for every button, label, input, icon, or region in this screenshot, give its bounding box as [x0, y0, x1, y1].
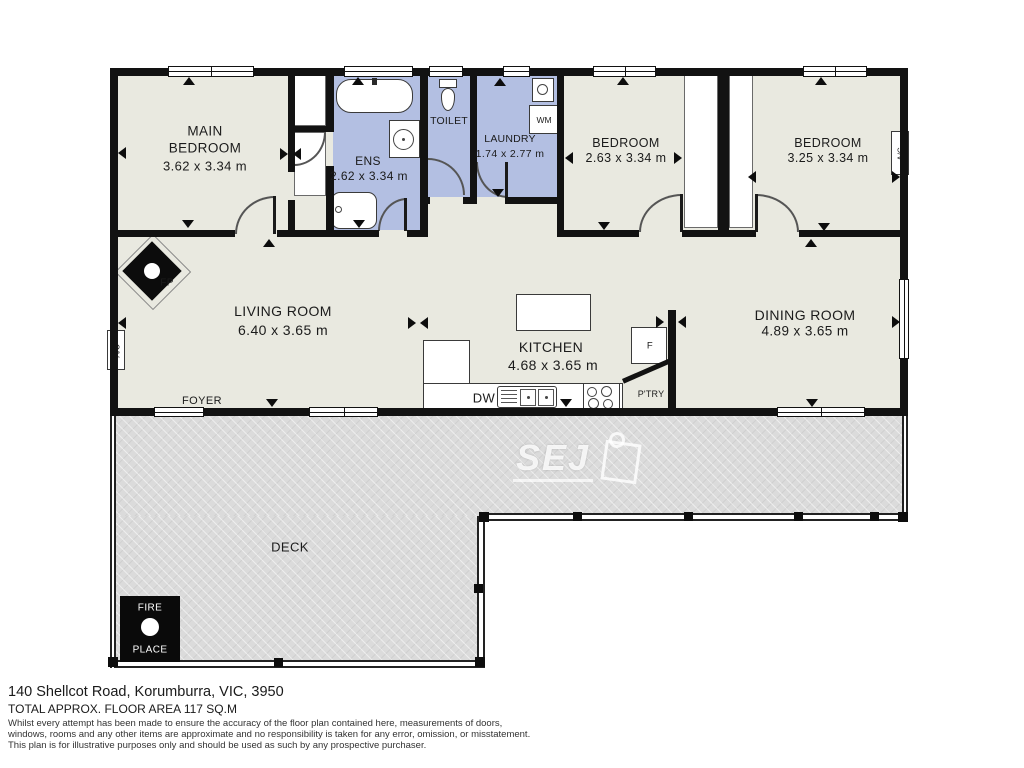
dimension-arrow: [806, 399, 818, 407]
dimension-arrow: [118, 317, 126, 329]
door-leaf: [273, 196, 276, 234]
window: [429, 66, 463, 77]
fridge: F: [631, 327, 667, 364]
wall: [463, 197, 477, 204]
window: [309, 407, 378, 417]
disclaimer-line: This plan is for illustrative purposes o…: [8, 740, 426, 751]
deck-railing: [483, 513, 908, 521]
wall: [407, 230, 428, 237]
dimension-arrow: [420, 317, 428, 329]
deck-railing: [110, 416, 116, 668]
room-label-deck: DECK: [271, 540, 309, 555]
room-label-living: LIVING ROOM: [234, 303, 332, 319]
room-label-kitchen: KITCHEN: [519, 339, 583, 355]
sink-drainer: [501, 390, 517, 404]
dimension-arrow: [656, 316, 664, 328]
wall: [110, 68, 118, 416]
dimension-arrow: [892, 171, 900, 183]
laundry-trough-bowl: [537, 84, 548, 95]
deck-post: [870, 512, 879, 521]
window-mullion: [211, 67, 212, 76]
disclaimer-line: Whilst every attempt has been made to en…: [8, 718, 502, 729]
washing-machine: WM: [529, 105, 558, 134]
dimension-arrow: [815, 77, 827, 85]
wall: [326, 230, 379, 237]
deck-fireplace-flue: [141, 618, 159, 636]
window: [168, 66, 254, 77]
dimension-arrow: [892, 316, 900, 328]
disclaimer-line: windows, rooms and any other items are a…: [8, 729, 530, 740]
dimension-arrow: [805, 239, 817, 247]
room-dims-dining: 4.89 x 3.65 m: [762, 324, 849, 339]
room-dims-laundry: 1.74 x 2.77 m: [476, 148, 545, 160]
dimension-arrow: [674, 152, 682, 164]
sej-watermark-text: SEJ: [516, 437, 590, 479]
deck-post: [274, 658, 283, 667]
window: [803, 66, 867, 77]
dimension-arrow: [598, 222, 610, 230]
shower-tap: [335, 206, 342, 213]
room-label-toilet: TOILET: [430, 115, 468, 127]
wall: [900, 68, 908, 416]
vanity-basin-drain: [402, 138, 405, 141]
window: [154, 407, 204, 417]
dimension-arrow: [293, 148, 301, 160]
room-dims-bedroom2: 2.63 x 3.34 m: [586, 151, 667, 165]
wall: [290, 126, 328, 132]
main-bedroom-robe-upper: [294, 75, 326, 126]
door-leaf: [505, 162, 508, 198]
deck-railing: [902, 416, 908, 516]
window-mullion: [835, 67, 836, 76]
dimension-arrow: [353, 220, 365, 228]
room-label-bedroom2: BEDROOM: [592, 136, 659, 150]
deck-post: [898, 512, 908, 522]
window: [899, 279, 909, 359]
floor-area-text: TOTAL APPROX. FLOOR AREA 117 SQ.M: [8, 702, 237, 716]
room-label-main-bedroom: BEDROOM: [169, 141, 242, 156]
dimension-arrow: [183, 77, 195, 85]
wall: [718, 68, 729, 237]
dimension-arrow: [408, 317, 416, 329]
stove-burner: [601, 386, 612, 397]
room-dims-main-bedroom: 3.62 x 3.34 m: [163, 159, 247, 174]
room-dims-living: 6.40 x 3.65 m: [238, 322, 328, 338]
window: [344, 66, 413, 77]
wall: [420, 68, 428, 237]
bedroom2-robe: [684, 75, 718, 228]
dimension-arrow: [565, 152, 573, 164]
bedroom3-robe: [729, 75, 753, 228]
door-leaf: [755, 194, 758, 232]
sink-bowl-drain: [545, 396, 548, 399]
wall: [505, 197, 564, 204]
room-dims-kitchen: 4.68 x 3.65 m: [508, 357, 598, 373]
wall: [420, 197, 430, 204]
toilet-cistern: [439, 79, 457, 88]
wall: [110, 230, 235, 237]
dimension-arrow: [617, 77, 629, 85]
room-label-foyer: FOYER: [182, 395, 222, 407]
sej-watermark: SEJ: [505, 432, 655, 484]
dimension-arrow: [263, 239, 275, 247]
room-label-ens: ENS: [355, 154, 381, 168]
wall: [557, 68, 564, 237]
bath-tap: [372, 78, 377, 85]
dimension-arrow: [560, 399, 572, 407]
door-leaf: [404, 198, 407, 231]
dimension-arrow: [352, 77, 364, 85]
window: [593, 66, 656, 77]
room-label-bedroom3: BEDROOM: [794, 136, 861, 150]
deck-post: [475, 657, 485, 667]
deck-post: [479, 512, 489, 522]
deck-post: [684, 512, 693, 521]
deck-post: [108, 657, 118, 667]
room-dims-ens: 2.62 x 3.34 m: [330, 169, 408, 183]
fireplace-flue: [144, 263, 160, 279]
deck-post: [573, 512, 582, 521]
wall: [557, 230, 639, 237]
property-address: 140 Shellcot Road, Korumburra, VIC, 3950: [8, 684, 284, 700]
deck-fireplace-label-bottom: PLACE: [133, 645, 168, 656]
room-label-dining: DINING ROOM: [755, 307, 856, 323]
room-label-laundry: LAUNDRY: [484, 133, 535, 145]
deck-fireplace-label-top: FIRE: [138, 603, 162, 614]
stove-burner: [587, 387, 597, 397]
window: [777, 407, 865, 417]
washing-machine-label: WM: [536, 115, 551, 125]
room-label-main-bedroom: MAIN: [187, 124, 222, 139]
fridge-label: F: [647, 341, 653, 352]
sink-bowl-drain: [527, 396, 530, 399]
dimension-arrow: [492, 189, 504, 197]
window-mullion: [344, 408, 345, 416]
wall: [277, 230, 326, 237]
fireplace-label: FP: [160, 278, 174, 289]
window-mullion: [625, 67, 626, 76]
window: [503, 66, 530, 77]
dimension-arrow: [280, 148, 288, 160]
dishwasher-label: DW: [473, 391, 495, 406]
dimension-arrow: [818, 223, 830, 231]
deck-post: [794, 512, 803, 521]
kitchen-bench-left: [423, 340, 470, 386]
wall: [799, 230, 908, 237]
floor-plan-page: SEJ FIRE PLACE WM F: [0, 0, 1024, 768]
wall: [682, 230, 756, 237]
dimension-arrow: [118, 147, 126, 159]
wall: [470, 68, 477, 204]
dimension-arrow: [678, 316, 686, 328]
deck-fireplace: FIRE PLACE: [120, 596, 180, 662]
kitchen-island: [516, 294, 591, 331]
wall: [326, 68, 334, 132]
dimension-arrow: [494, 78, 506, 86]
pantry-label: P'TRY: [638, 389, 665, 399]
dimension-arrow: [266, 399, 278, 407]
wall: [668, 310, 676, 416]
dimension-arrow: [182, 220, 194, 228]
dimension-arrow: [748, 171, 756, 183]
sej-watermark-underline: [513, 479, 593, 482]
door-leaf: [680, 194, 683, 232]
window-mullion: [821, 408, 822, 416]
room-dims-bedroom3: 3.25 x 3.34 m: [788, 151, 869, 165]
deck-post: [474, 584, 483, 593]
